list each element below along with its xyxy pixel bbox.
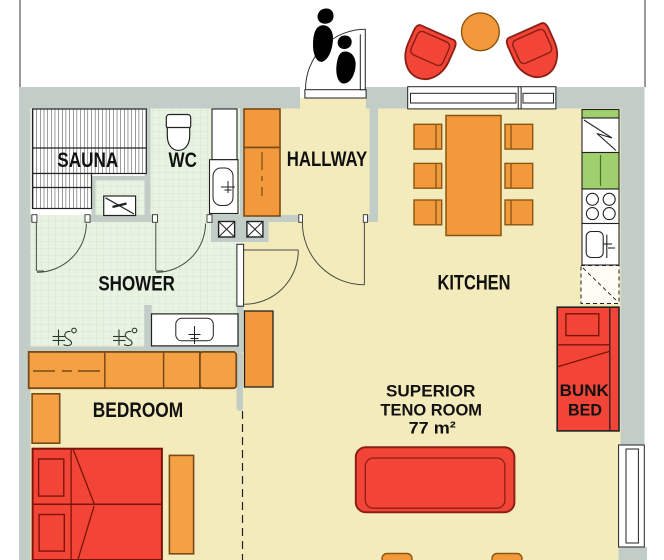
svg-text:BED: BED (568, 401, 602, 419)
svg-text:BUNK: BUNK (560, 382, 609, 400)
svg-text:SAUNA: SAUNA (57, 149, 118, 172)
svg-text:WC: WC (169, 149, 197, 172)
svg-text:SUPERIOR: SUPERIOR (386, 383, 475, 401)
svg-text:KITCHEN: KITCHEN (438, 272, 511, 295)
svg-text:TENO ROOM: TENO ROOM (380, 402, 482, 420)
svg-text:SHOWER: SHOWER (98, 272, 175, 295)
svg-text:BEDROOM: BEDROOM (93, 399, 183, 422)
svg-text:HALLWAY: HALLWAY (287, 148, 368, 171)
svg-text:77 m²: 77 m² (409, 419, 457, 437)
